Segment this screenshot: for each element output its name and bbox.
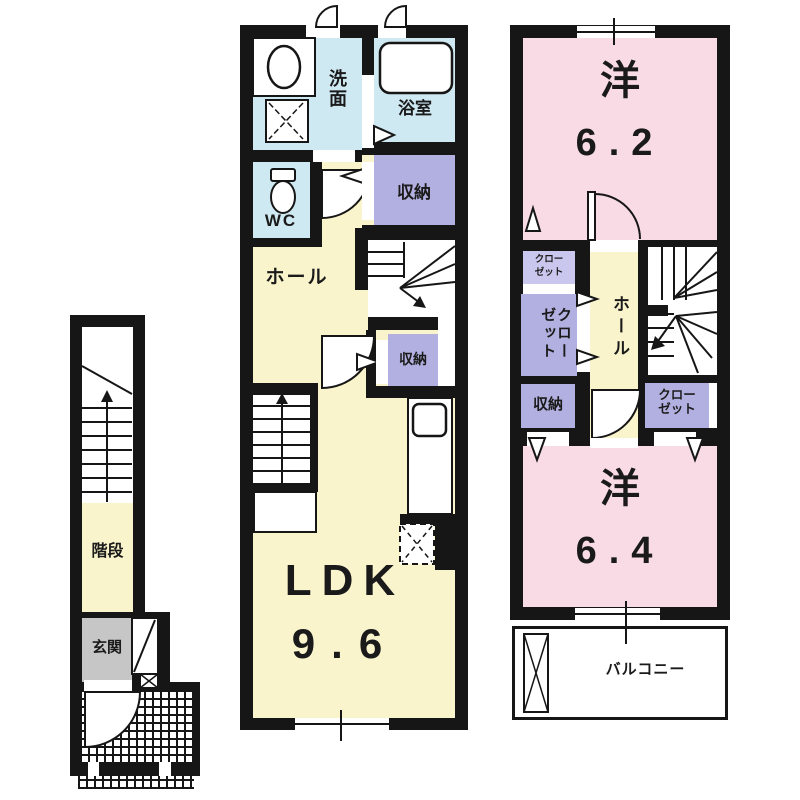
washroom-door-gap: [313, 150, 355, 162]
label-hall-2f: ホール: [256, 268, 338, 288]
label-bathroom: 浴室: [378, 100, 452, 118]
f3-bottom-window: [575, 601, 660, 644]
label-bedroom-top-size: 6.2: [570, 124, 670, 164]
label-wc: WC: [255, 212, 307, 230]
porch-notch-left: [88, 762, 99, 776]
label-bedroom-bottom: 洋: [570, 468, 670, 510]
stairs-2f-down: [253, 393, 310, 483]
label-ldk: LDK: [255, 558, 435, 604]
stairs-2f-down-arrow: [276, 393, 288, 404]
storage-3f-door-marker: [529, 438, 545, 460]
bathroom-fixtures: [362, 43, 452, 148]
label-balcony: バルコニー: [593, 662, 698, 678]
balcony-fixtures: [524, 634, 548, 712]
bedroom-top-door-gap: [590, 240, 638, 252]
closet-small-door-marker: [526, 208, 540, 231]
label-bedroom-bottom-size: 6.4: [570, 532, 670, 572]
ldk-door: [322, 336, 388, 388]
toilet-tank: [271, 169, 295, 181]
wc-fixtures: [271, 150, 370, 218]
label-storage-top: 収納: [376, 184, 452, 202]
f2-top-exterior-doors: [306, 6, 406, 38]
label-entrance: 玄関: [82, 640, 132, 656]
f3-top-window: [577, 18, 655, 45]
label-ldk-size: 9.6: [255, 622, 435, 666]
label-closet-small-line2: ゼット: [523, 268, 575, 278]
washroom-top-door-arc: [316, 6, 337, 27]
bathroom-top-door-arc: [385, 6, 406, 27]
label-storage-mid: 収納: [389, 352, 437, 367]
bathtub: [380, 43, 452, 93]
label-closet-small-line1: クロー: [523, 255, 575, 265]
label-bedroom-top: 洋: [570, 60, 670, 102]
sink-bowl: [268, 46, 300, 88]
bedroom-bottom-door: [590, 390, 640, 448]
label-closet-right-line1: クロー: [645, 389, 709, 402]
washroom-fixtures: [253, 38, 315, 142]
f2-bottom-window: [295, 710, 389, 741]
stairs-2f-arrow: [413, 296, 426, 308]
bedroom-bottom-door-arc: [592, 390, 640, 438]
kitchen-sink: [413, 404, 446, 436]
stairs-2f-up: [368, 242, 455, 308]
bedroom-top-door: [526, 192, 640, 252]
label-hall-3f: ホール: [606, 272, 628, 384]
stairs-3f: [648, 247, 717, 373]
label-washroom: 洗面: [324, 58, 346, 120]
stairs-1f: [82, 366, 132, 502]
kitchen-fixtures: [400, 398, 452, 564]
bedroom-top-door-leaf: [588, 192, 595, 240]
closet-small-door-strip: [523, 284, 575, 294]
storage-top-door-strip: [362, 162, 374, 220]
closet-right-door-marker: [687, 438, 703, 460]
bath-door-strip: [362, 75, 374, 148]
floor-plan-canvas: 階段 玄関 洗面 浴室 WC 収納 ホール 収納 LDK 9.6 洋 6.2 ク…: [0, 0, 800, 800]
stairs-1f-up-arrow: [101, 390, 113, 402]
bath-door-marker: [374, 126, 394, 144]
bedroom-top-door-arc: [595, 194, 640, 239]
bedroom-bottom-door-gap: [590, 438, 638, 448]
under-stair-cabinet: [254, 492, 316, 532]
storage-mid-door-strip: [376, 340, 388, 384]
entrance-door-arc: [85, 692, 140, 747]
label-closet-left: クローゼット: [529, 302, 571, 366]
label-closet-right-line2: ゼット: [645, 403, 709, 416]
toilet-bowl: [271, 181, 295, 213]
closet-left-door: [577, 292, 597, 372]
porch-notch-right: [159, 762, 171, 776]
label-stairs-1f: 階段: [82, 544, 133, 561]
label-storage-3f: 収納: [521, 397, 575, 413]
